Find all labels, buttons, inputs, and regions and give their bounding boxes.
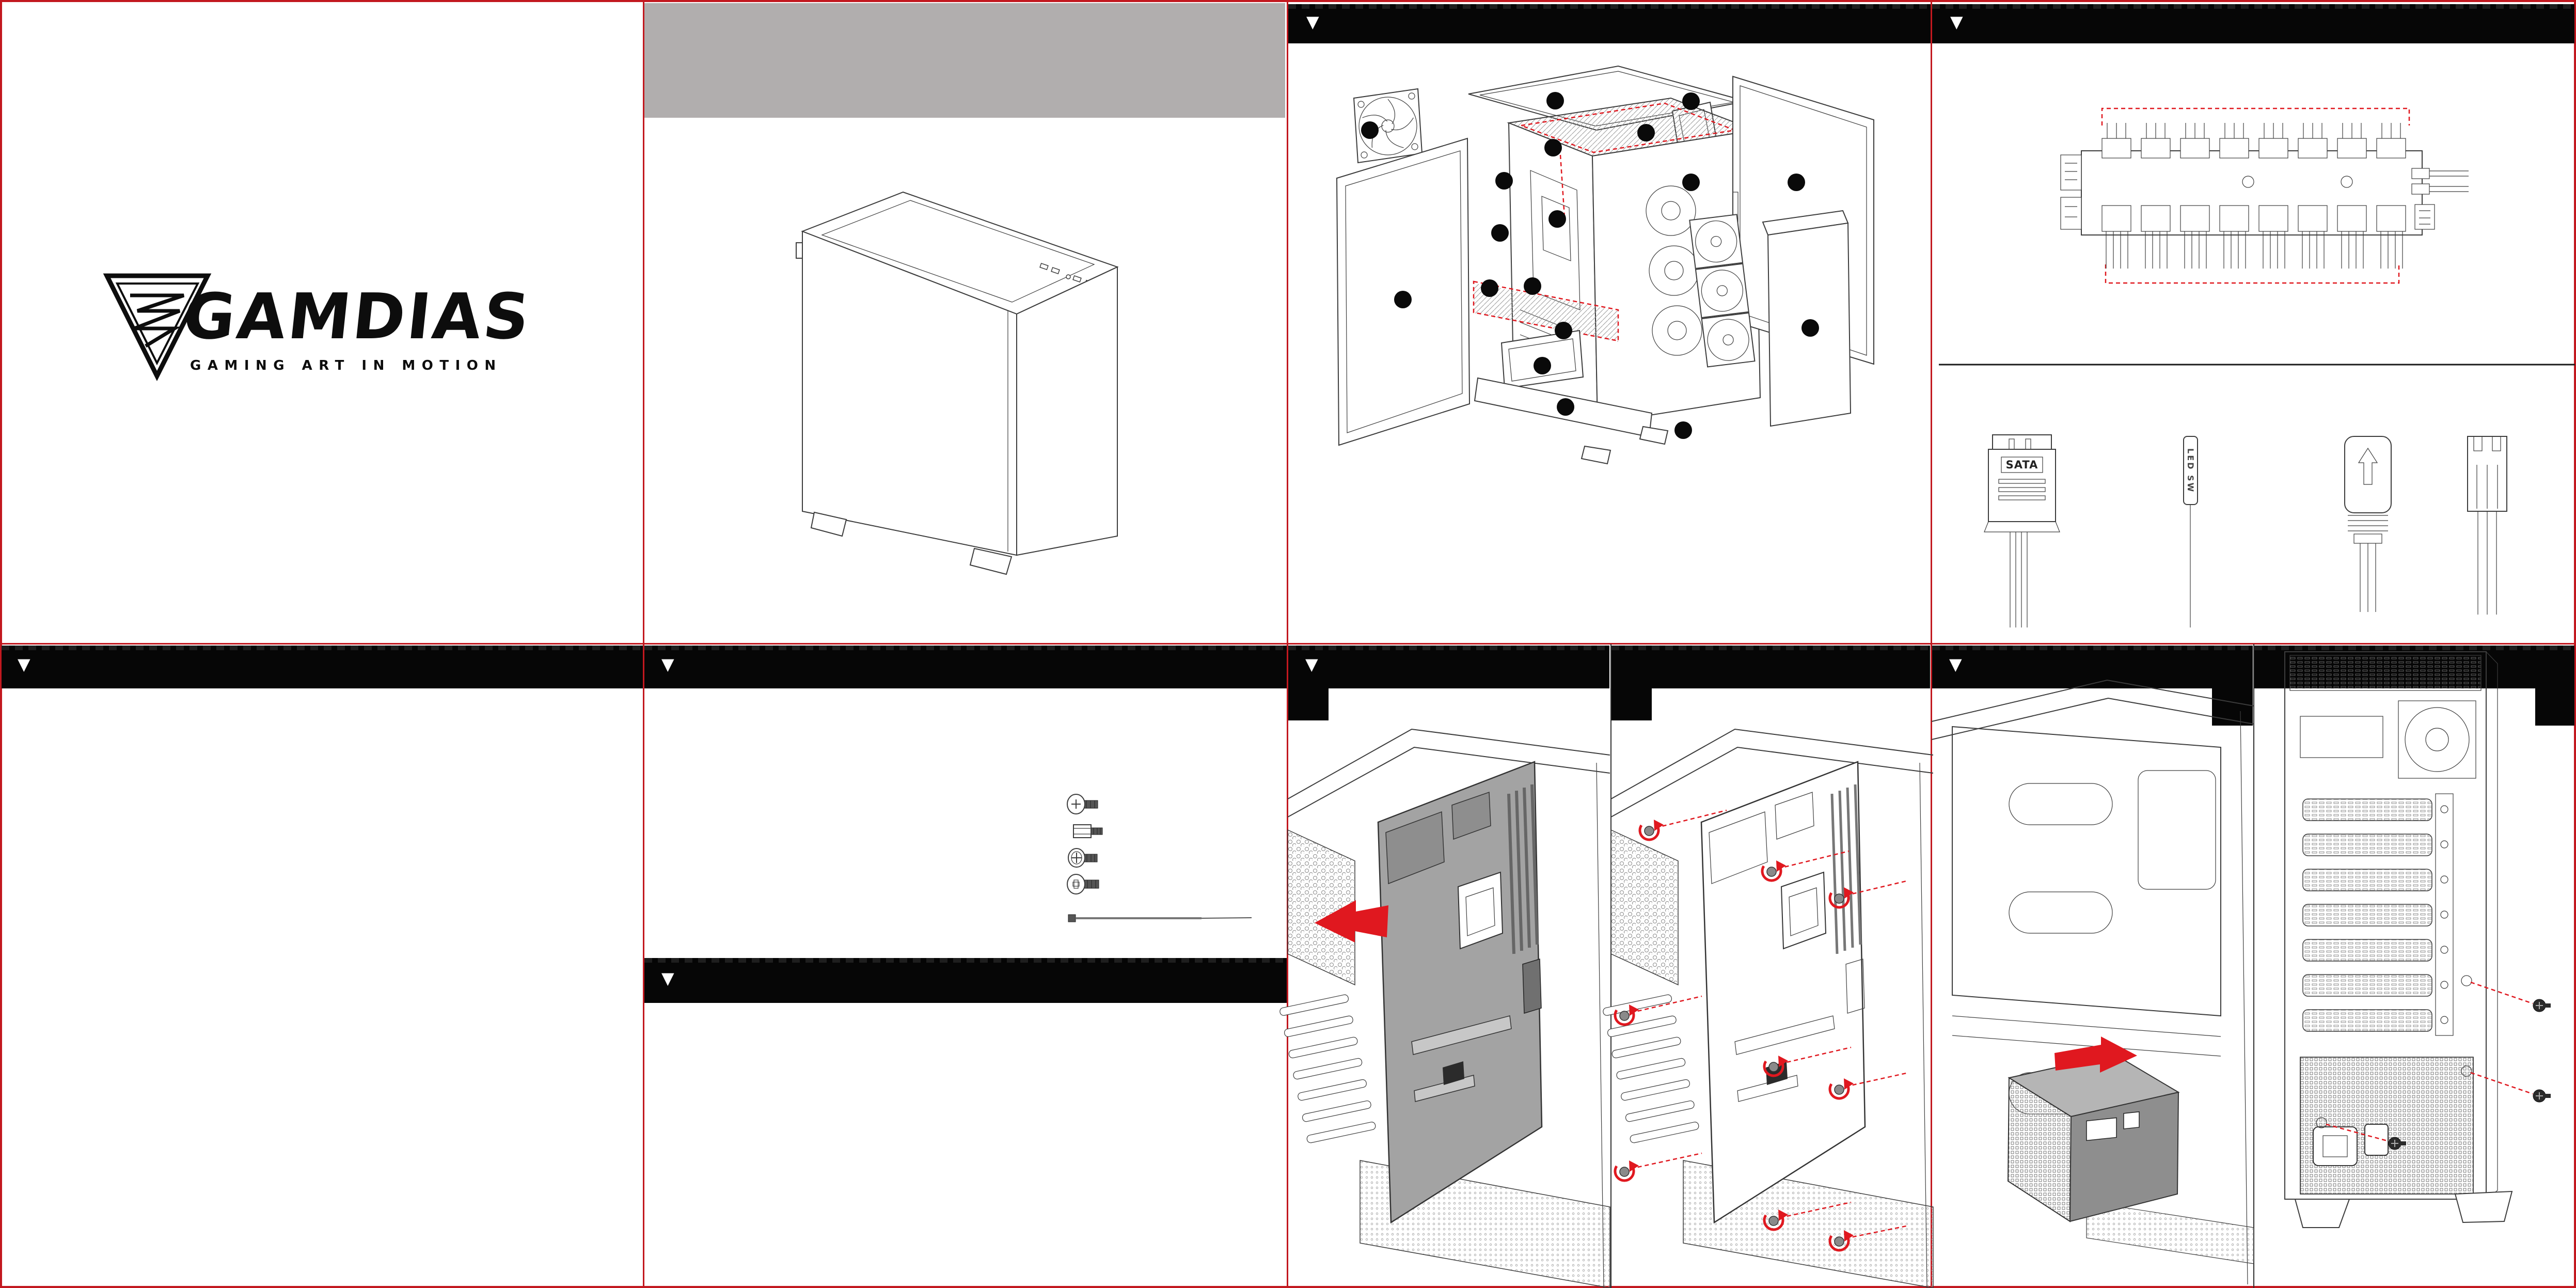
fan-plug bbox=[2468, 436, 2507, 615]
motherboard bbox=[1701, 762, 1865, 1222]
hub-pcb bbox=[2081, 151, 2422, 235]
psu-bay bbox=[2300, 976, 2473, 1194]
section-header-bar bbox=[2, 646, 643, 688]
case-io-tab bbox=[796, 243, 802, 258]
hub-left-connectors bbox=[2061, 155, 2081, 229]
atx-24pin bbox=[1523, 959, 1541, 1013]
exploded-view-illustration bbox=[1288, 0, 1932, 644]
fan-screw-icon bbox=[1068, 849, 1097, 867]
foot-left bbox=[2295, 1199, 2349, 1228]
motherboard bbox=[1378, 762, 1542, 1222]
fan-hub-diagram bbox=[1932, 0, 2576, 644]
io-shield-opening bbox=[2300, 716, 2383, 758]
sata-label: SATA bbox=[2001, 457, 2043, 473]
rear-screws-illustration bbox=[2254, 644, 2576, 1288]
case-isometric-illustration bbox=[644, 0, 1288, 644]
section-header-bar-2 bbox=[644, 958, 1287, 1003]
psu bbox=[2008, 1055, 2178, 1221]
accessories-illustration bbox=[644, 644, 1287, 958]
mobo-screws-illustration bbox=[1611, 644, 1934, 1288]
standoff-icon bbox=[1073, 825, 1102, 838]
hub-bottom-bracket bbox=[2106, 264, 2399, 283]
led-sw-label: LED SW bbox=[2184, 440, 2198, 502]
front-panel bbox=[1763, 211, 1851, 426]
foot-b bbox=[1582, 446, 1610, 464]
hub-fan-headers bbox=[2102, 206, 2406, 269]
brand-wordmark: GAMDIAS bbox=[180, 279, 535, 353]
psu-slide-illustration bbox=[1932, 644, 2254, 1288]
phillips-screw-icon bbox=[1067, 874, 1099, 894]
rear-fan-mount bbox=[2398, 701, 2476, 778]
hub-top-bracket bbox=[2102, 108, 2409, 125]
foot-right bbox=[2455, 1191, 2512, 1222]
hub-right-connectors bbox=[2412, 168, 2469, 229]
brand-tagline: GAMING ART IN MOTION bbox=[190, 358, 502, 373]
psu-power-inlet bbox=[2087, 1118, 2116, 1140]
section-marker-triangle: ▼ bbox=[661, 970, 674, 986]
hub-argb-headers bbox=[2102, 123, 2406, 158]
case-side-panel bbox=[1017, 267, 1117, 555]
foot-a bbox=[1640, 427, 1668, 444]
psu-switch bbox=[2124, 1112, 2139, 1129]
manual-sheet: GAMDIAS GAMING ART IN MOTION ▼ bbox=[0, 0, 2576, 1288]
pci-slot-covers bbox=[2303, 794, 2453, 1035]
power-socket bbox=[2313, 1127, 2357, 1166]
mobo-slide-illustration bbox=[1288, 644, 1611, 1288]
section-marker-triangle: ▼ bbox=[18, 656, 30, 672]
brand-logo: GAMDIAS GAMING ART IN MOTION bbox=[0, 0, 644, 644]
argb-plug bbox=[2345, 436, 2391, 612]
cable-tie-icon bbox=[1068, 915, 1252, 922]
thumbscrew-icon bbox=[1067, 794, 1098, 814]
